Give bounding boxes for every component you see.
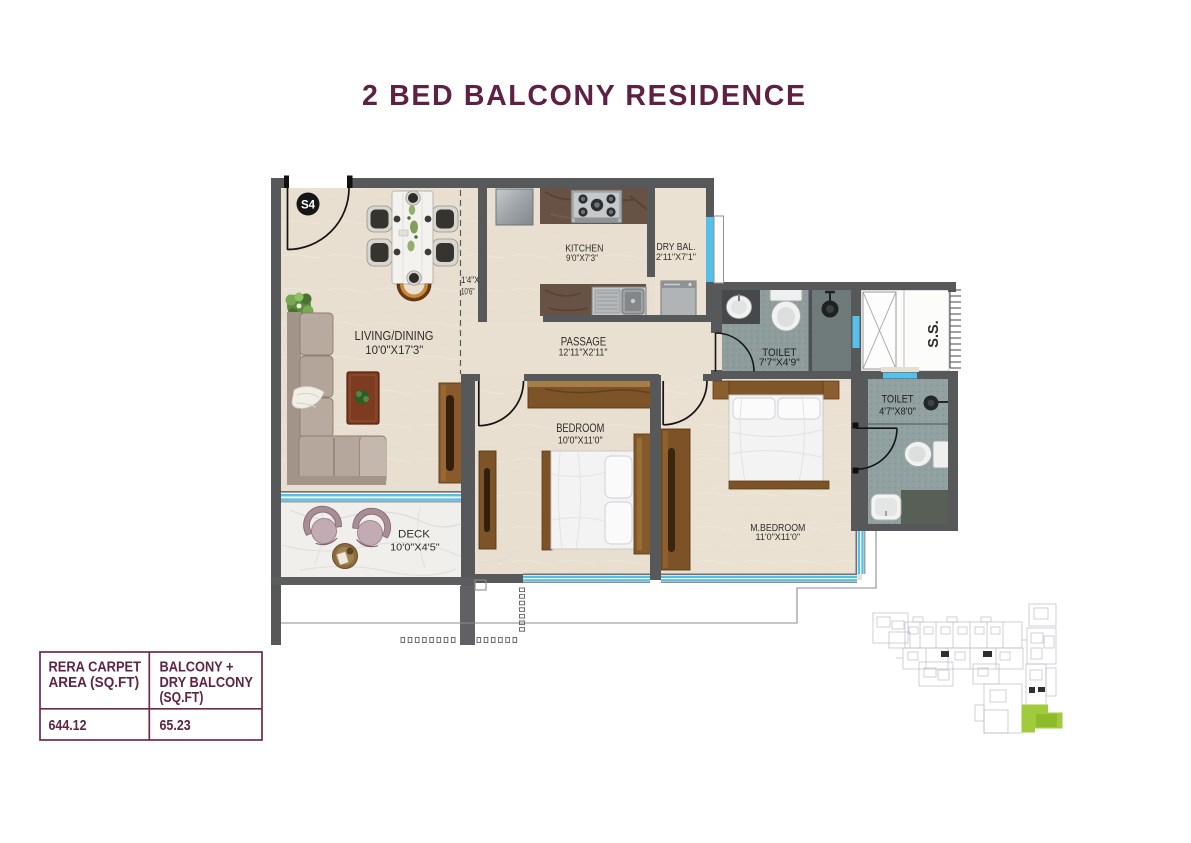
svg-text:DECK: DECK [398, 528, 430, 540]
svg-text:(SQ.FT): (SQ.FT) [160, 690, 204, 706]
svg-text:DRY BALCONY: DRY BALCONY [160, 675, 254, 691]
svg-text:S.S.: S.S. [926, 320, 942, 347]
svg-text:2 BED BALCONY RESIDENCE: 2 BED BALCONY RESIDENCE [362, 80, 805, 112]
svg-text:11'0"X11'0": 11'0"X11'0" [756, 532, 801, 542]
svg-text:10'0"X17'3": 10'0"X17'3" [365, 343, 423, 357]
svg-text:RERA CARPET: RERA CARPET [49, 660, 142, 676]
svg-text:S4: S4 [301, 200, 316, 212]
svg-text:4'7"X8'0": 4'7"X8'0" [879, 407, 916, 418]
svg-text:AREA (SQ.FT): AREA (SQ.FT) [49, 675, 140, 691]
svg-text:10'0"X11'0": 10'0"X11'0" [558, 436, 603, 447]
svg-text:9'0"X7'3": 9'0"X7'3" [566, 252, 598, 263]
svg-text:7'7"X4'9": 7'7"X4'9" [759, 357, 801, 368]
svg-text:10'0"X4'5": 10'0"X4'5" [390, 542, 440, 553]
svg-text:1'4"X: 1'4"X [461, 275, 480, 285]
svg-text:TOILET: TOILET [881, 394, 913, 406]
svg-text:12'11"X2'11": 12'11"X2'11" [558, 348, 607, 359]
svg-text:644.12: 644.12 [49, 718, 87, 734]
svg-text:PASSAGE: PASSAGE [561, 334, 606, 348]
svg-text:BEDROOM: BEDROOM [556, 421, 604, 435]
svg-text:LIVING/DINING: LIVING/DINING [355, 329, 434, 343]
svg-text:65.23: 65.23 [160, 718, 191, 734]
svg-text:10'6": 10'6" [461, 287, 475, 297]
svg-text:BALCONY +: BALCONY + [160, 660, 234, 676]
svg-text:2'11"X7'1": 2'11"X7'1" [656, 251, 696, 262]
